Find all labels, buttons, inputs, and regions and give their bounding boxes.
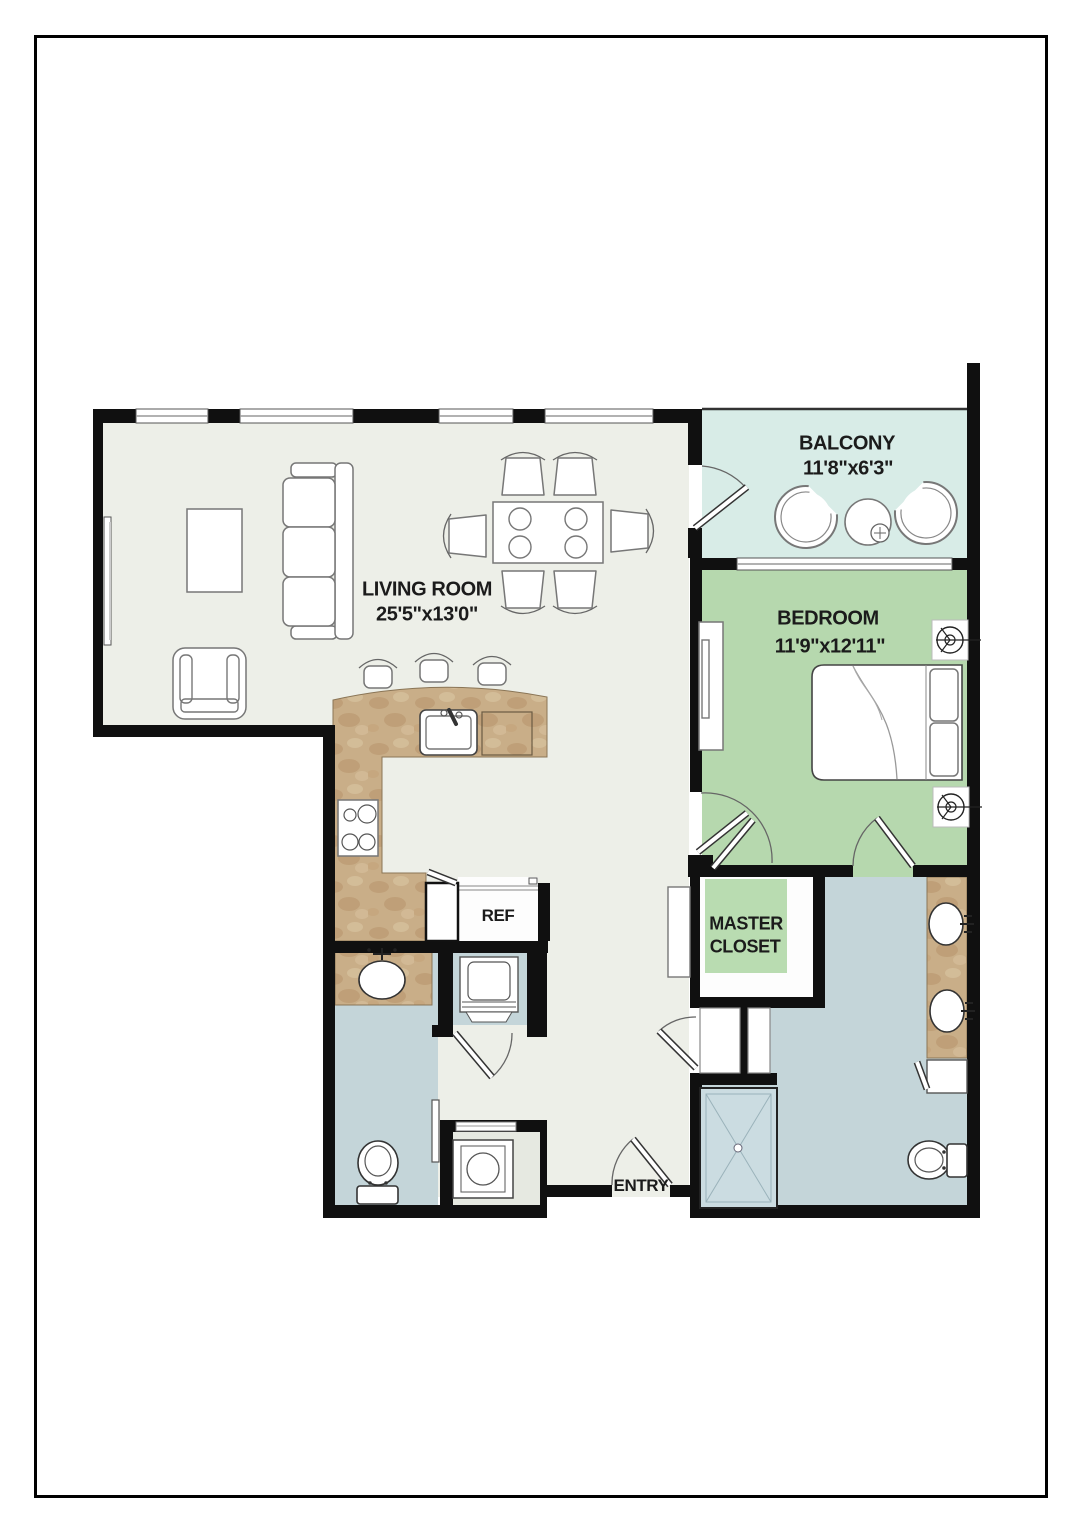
- bedroom-wardrobe: [699, 622, 723, 750]
- wall-kitchen-bath: [323, 941, 548, 953]
- living-room-label: LIVING ROOM: [362, 579, 492, 602]
- armchair: [173, 648, 246, 719]
- vestibule-panel: [748, 1008, 770, 1073]
- wall-left-block-bottom: [323, 1205, 547, 1218]
- wall-washer-right: [540, 1120, 547, 1218]
- shower: [700, 1088, 777, 1208]
- kitchen-sink: [420, 710, 477, 755]
- wall-west-block: [323, 725, 335, 1218]
- wall-balcony-west-lower: [688, 528, 702, 558]
- wall-living-bottom: [93, 725, 335, 737]
- balcony-dimensions: 11'8"x6'3": [803, 458, 893, 481]
- balcony-table: [845, 499, 891, 545]
- wall-closet-right: [813, 877, 825, 1008]
- window-top-2: [240, 409, 353, 423]
- bed: [812, 665, 962, 780]
- sofa: [283, 463, 353, 639]
- entry-label: ENTRY: [614, 1176, 669, 1196]
- water-heater: [460, 957, 518, 1022]
- master-closet-label-2: CLOSET: [710, 937, 781, 958]
- ref-label: REF: [482, 906, 515, 926]
- pantry-cabinet: [426, 883, 458, 941]
- wall-top-4: [513, 409, 545, 423]
- wall-top-2: [208, 409, 240, 423]
- wall-balcony-bottom-left: [690, 558, 737, 570]
- balcony-label: BALCONY: [799, 433, 895, 456]
- wall-bedroom-bottom-1: [713, 865, 853, 877]
- wall-closet-bottom: [690, 997, 825, 1008]
- master-closet-label-1: MASTER: [709, 914, 783, 935]
- window-top-1: [136, 409, 208, 423]
- wall-entry-left: [547, 1185, 612, 1197]
- window-top-4: [545, 409, 653, 423]
- wall-ref-right: [538, 883, 550, 941]
- wall-laundry-right: [527, 941, 547, 1037]
- dining-table: [493, 502, 603, 563]
- stove: [338, 800, 378, 856]
- window-left-wall: [104, 517, 111, 645]
- cutting-board: [482, 712, 532, 755]
- hall-closet: [668, 887, 690, 977]
- wall-balcony-west-upper: [688, 409, 702, 465]
- wall-bedroom-sw-corner: [688, 855, 713, 877]
- bathroom-toilet: [357, 1141, 398, 1204]
- window-bedroom-balcony: [737, 558, 952, 570]
- window-top-3: [439, 409, 513, 423]
- pillow: [930, 669, 958, 721]
- coffee-table: [187, 509, 242, 592]
- living-room-dimensions: 25'5"x13'0": [376, 604, 478, 627]
- pillow: [930, 723, 958, 776]
- shower-drain: [734, 1144, 742, 1152]
- bedroom-dimensions: 11'9"x12'11": [775, 636, 885, 659]
- floor-plan-page: LIVING ROOM 25'5"x13'0" BALCONY 11'8"x6'…: [0, 0, 1086, 1536]
- wall-vestibule-stub: [740, 1008, 748, 1073]
- wall-laundry-stub: [432, 1025, 453, 1037]
- wall-washer-left: [440, 1132, 453, 1205]
- vestibule-panel: [700, 1008, 740, 1073]
- wall-top-3: [353, 409, 439, 423]
- bedroom-label: BEDROOM: [777, 608, 879, 631]
- wall-left: [93, 409, 103, 737]
- wall-closet-west: [690, 877, 700, 1008]
- wall-vestibule-bottom: [690, 1073, 777, 1085]
- bathroom-door-leaf: [432, 1100, 439, 1162]
- master-toilet: [908, 1141, 967, 1179]
- wall-laundry-left: [438, 941, 453, 1030]
- wall-entry-right: [670, 1185, 690, 1197]
- floor-plan-drawing: [0, 0, 1086, 1536]
